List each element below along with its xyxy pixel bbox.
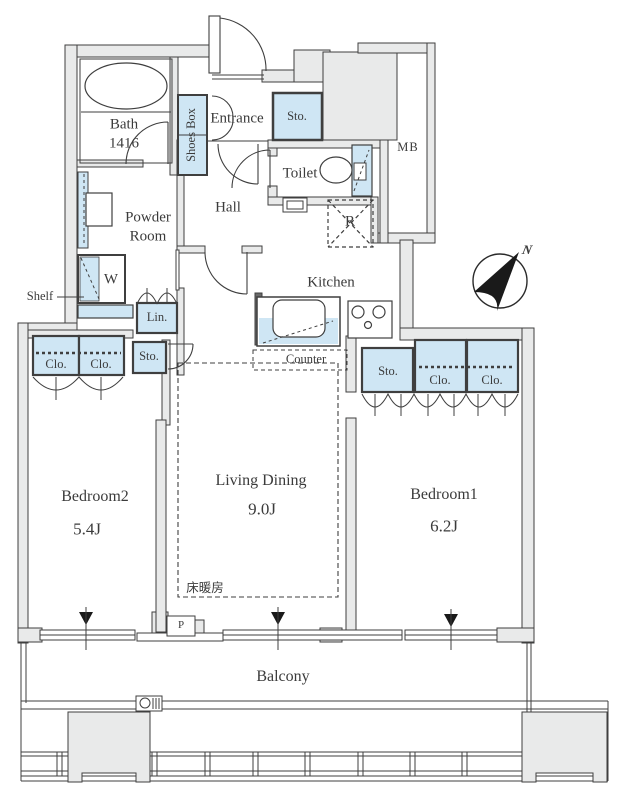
- hall-storage-label: Sto.: [139, 349, 159, 365]
- entrance-label: Entrance: [210, 110, 263, 129]
- window-markers: [79, 612, 458, 627]
- living-dining-label: Living Dining: [215, 471, 306, 491]
- toilet-bowl-icon: [320, 157, 352, 183]
- bedroom1-closet-left-label: Clo.: [429, 373, 450, 389]
- bedroom2-label: Bedroom2: [61, 487, 129, 507]
- bedroom2-closet-right-label: Clo.: [90, 357, 111, 373]
- balcony-hatch-left: [68, 712, 150, 782]
- living-dining-size-label: 9.0J: [248, 498, 276, 519]
- shelf-label: Shelf: [27, 289, 53, 305]
- pipe-space-label: P: [178, 619, 184, 633]
- entrance-hall-door: [218, 144, 258, 184]
- compass-icon: [473, 252, 527, 311]
- balcony-structure: [21, 643, 608, 782]
- powder-room-label: Powder Room: [113, 208, 183, 246]
- bedroom2-size-label: 5.4J: [73, 518, 101, 539]
- bedroom1-closet-curtain: [362, 394, 518, 416]
- bedroom2-closet-curtain: [33, 377, 123, 400]
- bath-label: Bath 1416: [109, 115, 139, 153]
- meter-box-label: MB: [397, 140, 418, 156]
- hall-label: Hall: [215, 199, 241, 218]
- shelf-icon: [78, 305, 133, 318]
- counter-label: Counter: [286, 352, 326, 368]
- linen-label: Lin.: [147, 310, 167, 326]
- entrance-door-leaf: [209, 16, 220, 73]
- balcony-hatch-right: [522, 712, 607, 782]
- toilet-door: [232, 150, 270, 188]
- shoes-box-label: Shoes Box: [184, 108, 200, 162]
- stove-icon: [348, 301, 392, 338]
- bedroom1-label: Bedroom1: [410, 485, 478, 505]
- bathtub-icon: [85, 63, 167, 109]
- kitchen-label: Kitchen: [307, 274, 354, 293]
- refrigerator-label: R: [345, 213, 355, 232]
- toilet-label: Toilet: [283, 165, 318, 184]
- hall-living-door: [205, 252, 247, 294]
- floor-plan: Bath 1416 Shoes Box Entrance Sto. Toilet…: [0, 0, 618, 800]
- floor-heating-label: 床暖房: [186, 581, 224, 597]
- bedroom1-closet-right-label: Clo.: [481, 373, 502, 389]
- bedroom1-size-label: 6.2J: [430, 515, 458, 536]
- drain-icon: [136, 696, 162, 711]
- balcony-label: Balcony: [256, 667, 309, 687]
- entrance-storage-label: Sto.: [287, 109, 307, 125]
- washbasin-icon: [86, 193, 112, 226]
- bath-size-label: 1416: [109, 134, 139, 153]
- windows: [40, 607, 497, 650]
- bedroom1-storage-label: Sto.: [378, 364, 398, 380]
- entrance-door-arc: [220, 18, 266, 71]
- washer-label: W: [104, 271, 118, 290]
- bedroom2-closet-left-label: Clo.: [45, 357, 66, 373]
